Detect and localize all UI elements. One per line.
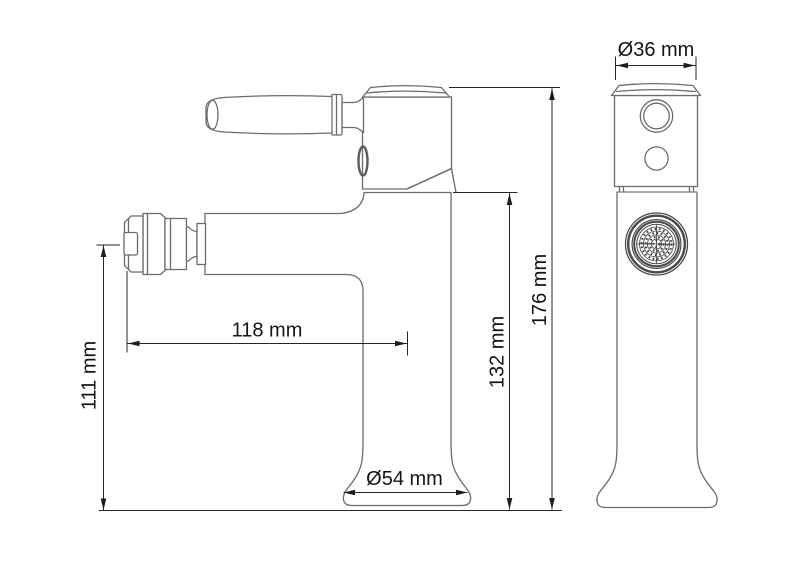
handle-lever	[206, 95, 364, 136]
dimension-label-base-diameter: Ø54 mm	[366, 468, 443, 490]
dimension-body-height: 132 mm	[453, 193, 518, 510]
drawing-canvas: 111 mm 118 mm 132 mm 176 mm	[0, 0, 800, 566]
aerator-clip	[124, 233, 138, 256]
front-view	[597, 84, 717, 508]
side-view	[124, 86, 471, 506]
handle-grip	[206, 96, 332, 134]
handle-rod	[342, 98, 364, 133]
aerator-neck	[187, 227, 198, 261]
aerator-flange	[197, 224, 206, 265]
dimension-top-diameter: Ø36 mm	[616, 39, 697, 80]
aerator-mid	[165, 219, 187, 270]
spout-aerator	[124, 214, 206, 275]
front-joint-tabs	[620, 187, 694, 193]
dimension-total-height: 176 mm	[449, 88, 560, 510]
faucet-head	[359, 86, 457, 193]
technical-drawing: 111 mm 118 mm 132 mm 176 mm	[0, 0, 800, 566]
front-head-block	[615, 96, 698, 187]
dimension-label-spout-height: 111 mm	[79, 341, 101, 410]
dimension-spout-height: 111 mm	[79, 245, 121, 510]
body-outline	[205, 193, 471, 506]
dimension-label-top-diameter: Ø36 mm	[618, 39, 695, 61]
dimension-label-total-height: 176 mm	[529, 254, 551, 326]
dimension-label-spout-reach: 118 mm	[232, 320, 303, 342]
front-aerator	[626, 213, 688, 275]
front-head	[612, 84, 701, 192]
faucet-body	[205, 193, 471, 506]
dimension-label-body-height: 132 mm	[487, 316, 509, 388]
aerator-ring-large	[143, 214, 165, 275]
